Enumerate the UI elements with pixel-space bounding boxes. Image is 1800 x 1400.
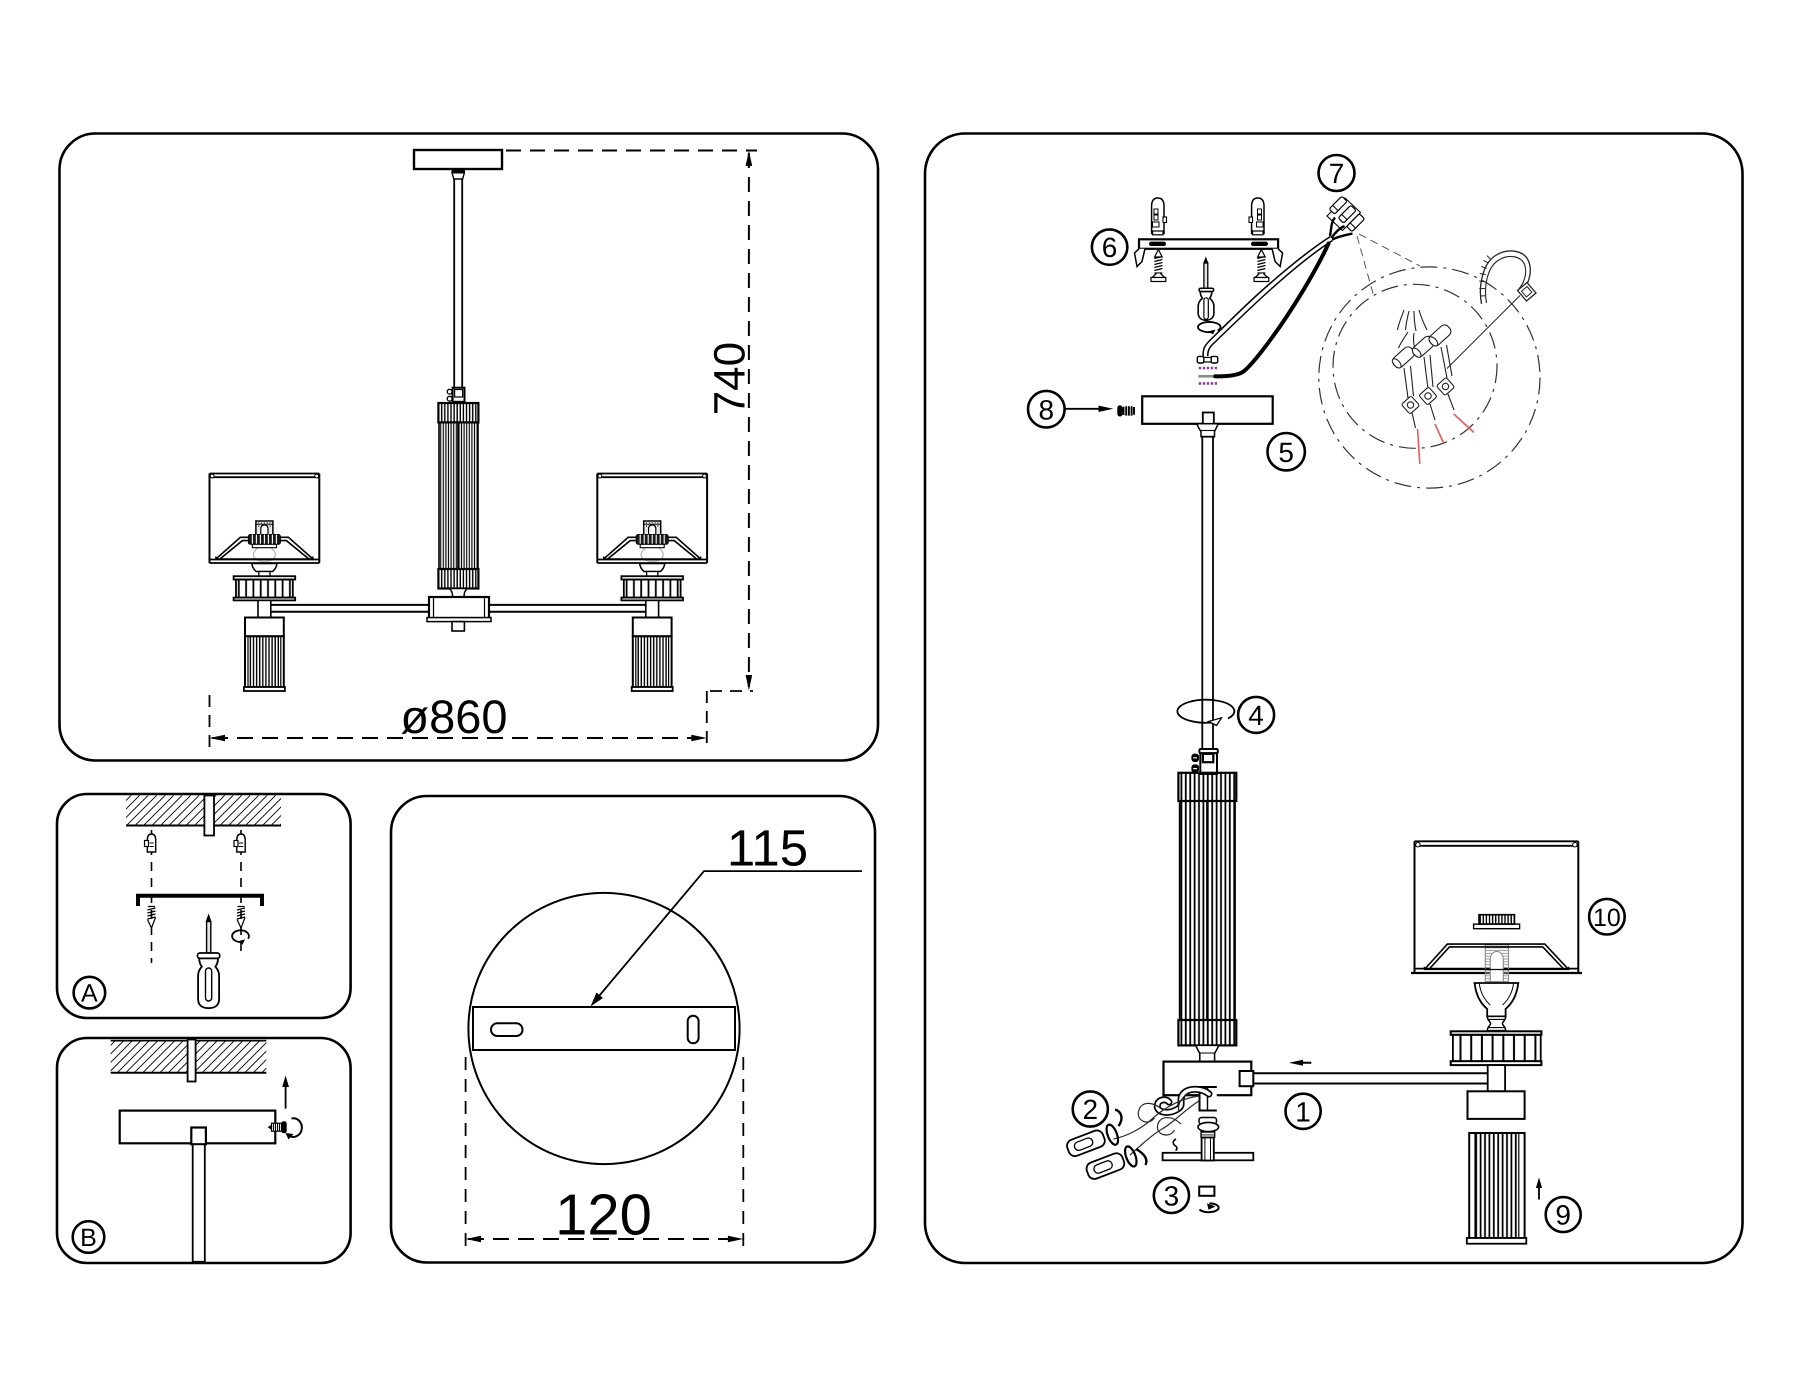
svg-text:5: 5 [1278,437,1294,468]
svg-text:740: 740 [705,342,754,415]
svg-text:2: 2 [1083,1094,1099,1125]
svg-text:120: 120 [555,1182,652,1247]
svg-text:9: 9 [1555,1200,1571,1231]
svg-text:7: 7 [1329,158,1345,189]
svg-text:ø860: ø860 [400,690,507,743]
svg-text:6: 6 [1102,232,1118,263]
svg-text:3: 3 [1164,1181,1180,1212]
svg-text:10: 10 [1593,904,1621,932]
svg-text:1: 1 [1295,1096,1311,1127]
svg-text:4: 4 [1248,700,1264,731]
svg-text:115: 115 [727,820,808,877]
svg-text:A: A [81,980,98,1008]
svg-text:8: 8 [1039,394,1055,425]
svg-text:B: B [80,1224,97,1252]
